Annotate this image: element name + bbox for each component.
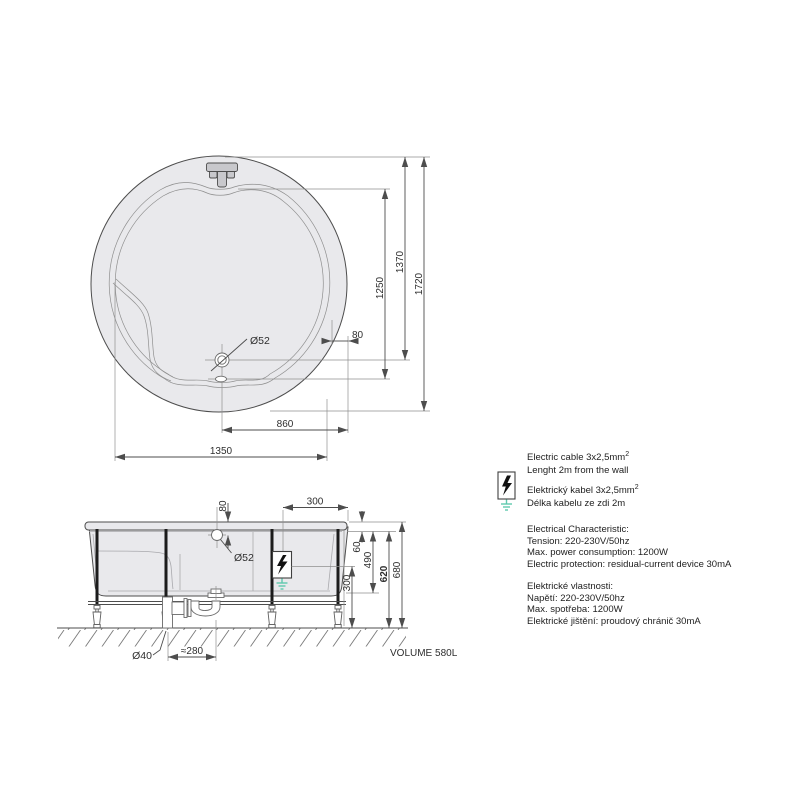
dim-300-top: 300 [283,497,348,508]
electrical-legend: Electric cable 3x2,5mm2 Lenght 2m from t… [497,449,787,627]
dim-1250: 1250 [375,189,386,379]
dim-60-value: 60 [352,541,363,553]
overflow-hole [212,530,223,541]
flange-ring-1 [184,599,187,618]
dim-1350-value: 1350 [210,446,233,457]
characteristic-en-line2: Max. power consumption: 1200W [527,547,668,558]
tub-rim-side [85,522,347,530]
drain-pipe-vertical [163,597,173,628]
dim-280-value: ≈280 [181,646,204,657]
cable-note-cz-line2: Délka kabelu ze zdi 2m [527,498,625,509]
cable-note-en: Electric cable 3x2,5mm2 Lenght 2m from t… [527,449,787,477]
leg-4 [337,529,340,605]
dim-680: 680 [392,522,403,628]
dim-490: 490 [363,532,374,594]
cable-note-cz: Elektrický kabel 3x2,5mm2 Délka kabelu z… [527,482,787,510]
dim-860: 860 [222,419,348,430]
floor-hatching [58,629,406,647]
cable-note-cz-sup: 2 [635,484,639,491]
faucet-bar [207,163,238,172]
tub-outer-rim-circle [91,156,347,412]
legend-symbol [497,471,517,513]
characteristic-title-cz: Elektrické vlastnosti: [527,581,613,592]
pipe-diameter-label: Ø40 [132,650,152,662]
dim-overflow-80-value: 80 [218,500,229,512]
dim-300-right-value: 300 [342,574,353,591]
cable-note-en-sup: 2 [625,451,629,458]
bathtub-side-view: Ø52 80 [57,497,458,663]
characteristic-cz-line1: Napětí: 220-230V/50hz [527,593,625,604]
characteristic-cz-line3: Elektrické jištění: proudový chránič 30m… [527,616,701,627]
characteristic-en-line3: Electric protection: residual-current de… [527,559,731,570]
dim-1720-value: 1720 [414,272,425,295]
foot-1 [93,606,101,628]
p-trap [191,601,220,616]
cable-note-en-line2: Lenght 2m from the wall [527,465,628,476]
leg-2 [165,529,168,605]
dim-680-value: 680 [392,561,403,578]
dim-1370-value: 1370 [395,250,406,273]
legend-ground-symbol-icon [501,500,512,511]
faucet-knob-right [227,171,235,178]
dim-620: 620 [379,532,390,629]
foot-4 [334,606,342,628]
elbow-pipe [172,602,184,615]
drawing-canvas: Ø52 1720 1370 1250 80 860 [0,0,800,800]
dim-1350: 1350 [115,446,327,457]
faucet-knob-left [210,171,218,178]
drain-diameter-label: Ø52 [250,335,270,347]
technical-drawing-page: Ø52 1720 1370 1250 80 860 [0,0,800,800]
dim-280: ≈280 [168,646,216,657]
electrical-characteristic-en: Electrical Characteristic: Tension: 220-… [527,524,787,570]
foot-3 [268,606,276,628]
volume-label: VOLUME 580L [390,648,458,659]
dim-860-value: 860 [277,419,294,430]
leg-1 [96,529,99,605]
dim-490-value: 490 [363,551,374,568]
overflow-diameter-label: Ø52 [234,552,254,564]
drain-inner-circle [218,356,226,364]
characteristic-en-line1: Tension: 220-230V/50hz [527,536,629,547]
suction-ellipse [216,376,227,382]
bathtub-top-view: Ø52 1720 1370 1250 80 860 [91,156,430,461]
characteristic-cz-line2: Max. spotřeba: 1200W [527,604,623,615]
dim-1720: 1720 [414,157,425,411]
dim-1370: 1370 [395,157,406,360]
electrical-characteristic-cz: Elektrické vlastnosti: Napětí: 220-230V/… [527,581,787,627]
characteristic-title-en: Electrical Characteristic: [527,524,629,535]
dim-620-value: 620 [379,565,390,582]
legend-text: Electric cable 3x2,5mm2 Lenght 2m from t… [527,449,787,627]
dim-300-top-value: 300 [307,497,324,508]
dim-1250-value: 1250 [375,276,386,299]
dim-rim-80-value: 80 [352,330,364,341]
